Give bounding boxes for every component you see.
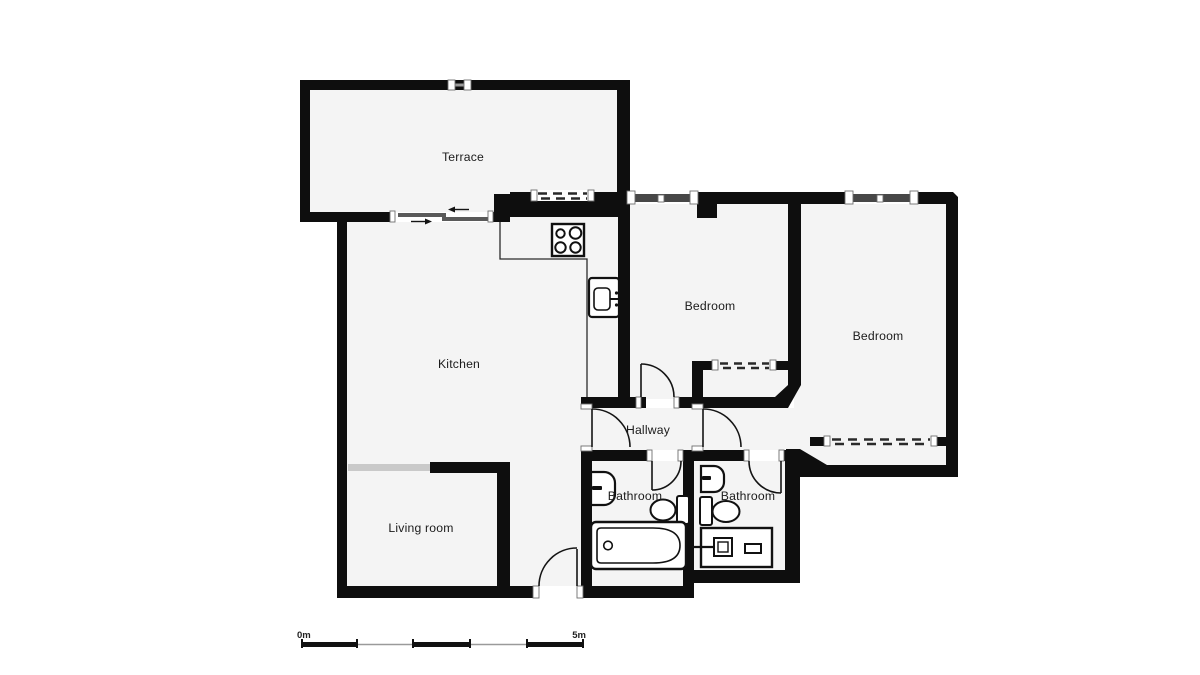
hallway-label: Hallway: [626, 423, 671, 437]
bedroom-2-label: Bedroom: [853, 329, 904, 343]
wide-opening: [348, 464, 430, 471]
floor-plan-drawing: Terrace Kitchen Living room Bedroom Bedr…: [0, 0, 1200, 675]
bedroom-1-window-icon: [627, 191, 698, 204]
floor-plan-canvas: Terrace Kitchen Living room Bedroom Bedr…: [0, 0, 1200, 675]
pillar: [697, 204, 717, 218]
scale-bar: 0m 5m: [297, 630, 586, 648]
hallway-floor: [592, 408, 800, 450]
living-room-label: Living room: [388, 521, 453, 535]
bedroom-1-label: Bedroom: [685, 299, 736, 313]
kitchen-window-icon: [531, 190, 594, 201]
bathtub-icon: [591, 522, 686, 569]
kitchen-sink-icon: [589, 278, 619, 317]
bedroom-2-window-icon: [845, 191, 918, 204]
kitchen-label: Kitchen: [438, 357, 480, 371]
scale-start-label: 0m: [297, 630, 311, 641]
terrace-label: Terrace: [442, 150, 484, 164]
stove-icon: [552, 224, 584, 256]
bathroom-1-label: Bathroom: [608, 489, 662, 503]
washer-icon: [692, 528, 772, 567]
bathroom-2-label: Bathroom: [721, 489, 775, 503]
